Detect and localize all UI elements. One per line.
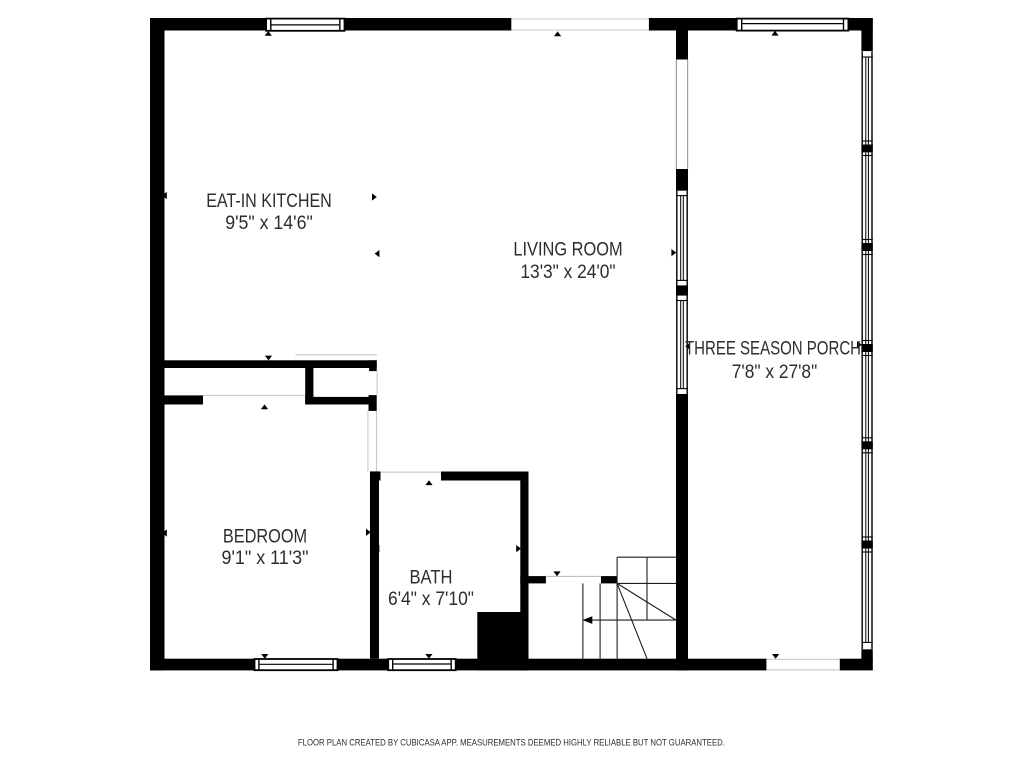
svg-text:6'4" x 7'10": 6'4" x 7'10" — [388, 588, 474, 610]
svg-text:9'1" x 11'3": 9'1" x 11'3" — [222, 547, 309, 569]
svg-text:EAT-IN KITCHEN: EAT-IN KITCHEN — [206, 190, 332, 212]
svg-text:BATH: BATH — [410, 567, 453, 589]
svg-text:THREE SEASON PORCH: THREE SEASON PORCH — [685, 338, 861, 360]
svg-text:FLOOR PLAN CREATED BY CUBICASA: FLOOR PLAN CREATED BY CUBICASA APP. MEAS… — [298, 738, 725, 749]
svg-text:LIVING ROOM: LIVING ROOM — [513, 239, 622, 261]
svg-text:9'5" x 14'6": 9'5" x 14'6" — [225, 212, 313, 234]
svg-text:13'3" x 24'0": 13'3" x 24'0" — [520, 261, 615, 283]
svg-text:BEDROOM: BEDROOM — [223, 526, 307, 548]
svg-text:7'8" x 27'8": 7'8" x 27'8" — [732, 361, 818, 383]
